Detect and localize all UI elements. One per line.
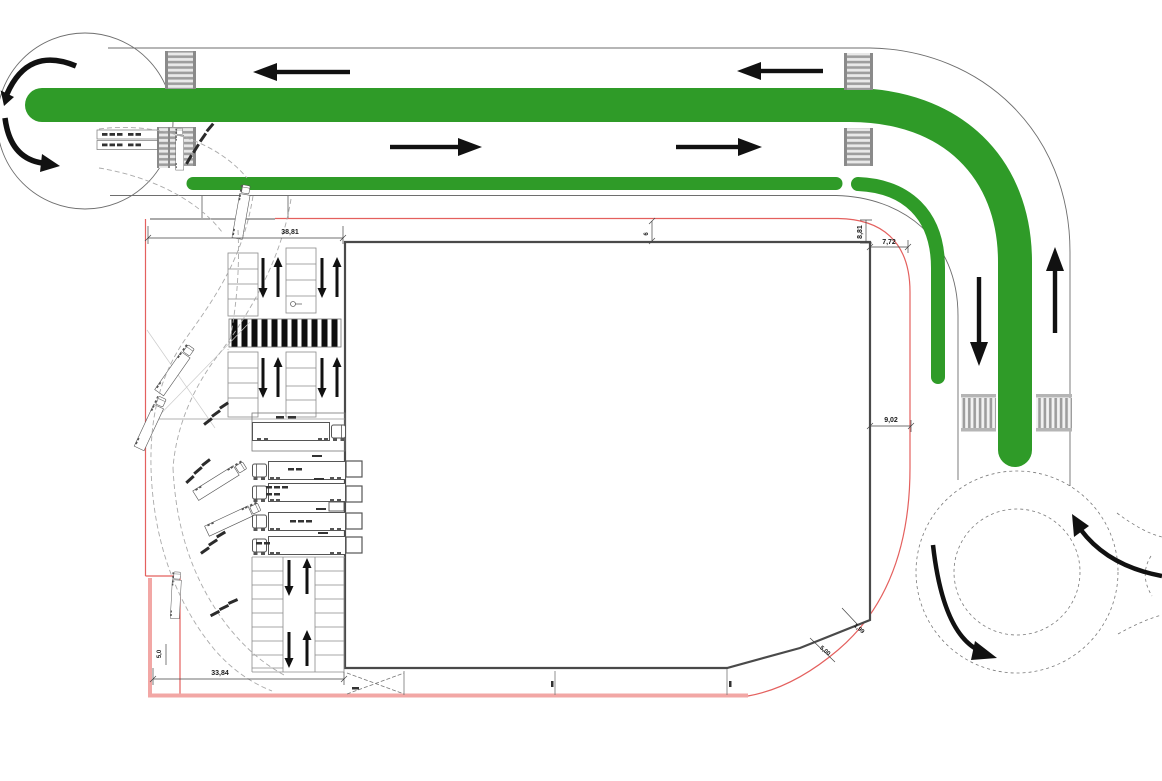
trucks — [134, 128, 346, 618]
enclosure-truck — [253, 423, 346, 442]
dock-leveler — [329, 502, 344, 511]
crosswalk-top-right-lower — [844, 128, 873, 166]
bottom-strip — [347, 669, 727, 695]
dimension-label: 8,81 — [857, 225, 864, 239]
dimension-label: 7,72 — [882, 239, 896, 246]
arrow-right-icon — [390, 138, 482, 156]
crosswalk-right-road-left-lane — [961, 394, 996, 432]
site-plan: 38,81 8,81 7,72 9,02 33,84 5,0 1,99 5,00… — [0, 0, 1162, 781]
tire-marks — [185, 123, 238, 617]
roundabout-exit-lower — [1118, 615, 1162, 634]
roundabout-exit-upper — [1117, 513, 1162, 537]
docked-truck — [253, 462, 346, 481]
stall-block — [286, 352, 316, 417]
arrow-down-icon — [970, 277, 988, 366]
legend-boxes — [97, 130, 158, 150]
stall-block — [228, 352, 258, 417]
entrance-truck — [232, 184, 252, 239]
dock-door — [346, 537, 362, 553]
dock-door — [346, 461, 362, 477]
roundabout-arrow-right — [1072, 514, 1162, 576]
crosswalk-entrance-mini — [157, 127, 170, 168]
maneuvering-truck — [134, 395, 168, 450]
maneuvering-truck — [154, 344, 195, 396]
arrow-right-icon — [676, 138, 762, 156]
roundabout-inner-circle — [954, 509, 1080, 635]
swept-paths — [99, 127, 291, 691]
arrow-left-icon — [253, 63, 350, 81]
building-footprint — [345, 242, 870, 668]
dimension-label: 5,00 — [818, 645, 831, 658]
roundabout-arrow-left — [933, 545, 997, 660]
parking-arrows-upper-row — [259, 257, 342, 298]
building — [345, 242, 870, 695]
stall-column-left — [252, 557, 283, 672]
dock-door — [346, 513, 362, 529]
parking-arrows-second-row — [259, 357, 342, 398]
dimension-label: 9,02 — [884, 417, 898, 424]
loop-arrow-lower — [5, 118, 60, 172]
roundabout-exit-island — [1145, 556, 1152, 596]
dimension-label: 38,81 — [281, 229, 299, 236]
dimension-label: 5,0 — [157, 649, 163, 658]
site-plan-canvas: 38,81 8,81 7,72 9,02 33,84 5,0 1,99 5,00… — [0, 0, 1162, 781]
ramp-symbol — [347, 673, 404, 694]
crosswalk-right-road-right-lane — [1036, 394, 1072, 432]
zebra-crossing-parking — [229, 319, 341, 347]
roundabout-outer-circle — [916, 471, 1118, 673]
crosswalk-top-right-upper — [844, 53, 873, 90]
strip-micro-label — [729, 681, 732, 687]
arrow-up-icon — [1046, 247, 1064, 333]
dimension-label: 6 — [644, 232, 650, 236]
strip-micro-label — [352, 687, 359, 690]
dimension-label: 33,84 — [211, 670, 229, 677]
arrow-left-icon — [737, 62, 823, 80]
crosswalk-top-left-upper — [165, 51, 196, 89]
dock-door — [346, 486, 362, 502]
roundabout — [916, 471, 1162, 673]
parking-arrows-lower-area — [285, 558, 312, 668]
stall-block — [228, 253, 258, 316]
strip-micro-label — [551, 681, 554, 687]
docked-truck — [253, 537, 346, 556]
